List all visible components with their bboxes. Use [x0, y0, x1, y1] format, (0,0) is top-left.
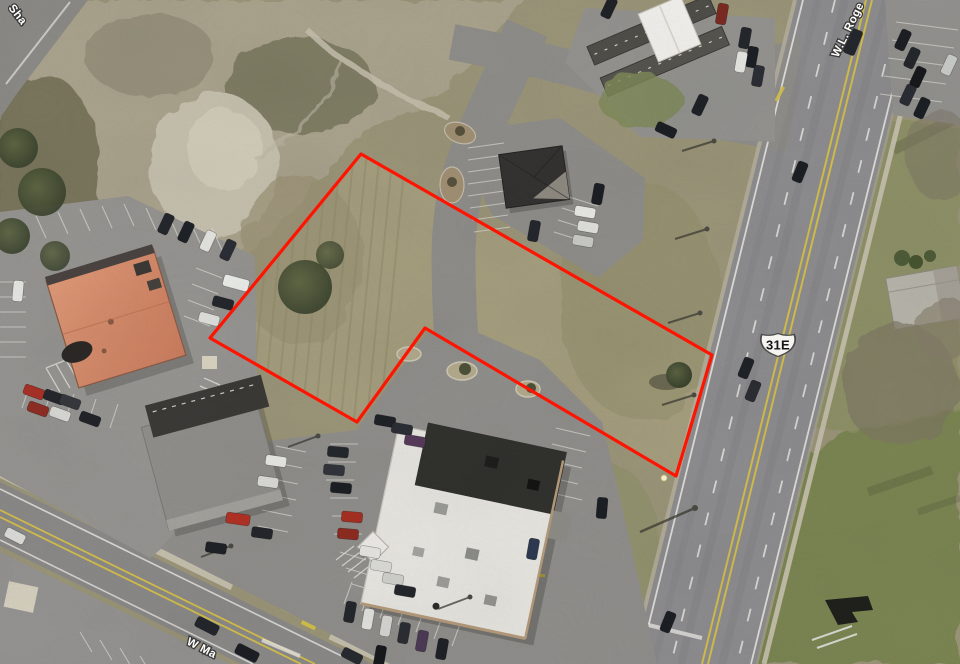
map-canvas[interactable]: 31E Sha W.L. Roge W Ma	[0, 0, 960, 664]
parcel-corner-marker	[661, 475, 667, 481]
route-shield-label: 31E	[766, 338, 790, 353]
aerial-map-view: 31E Sha W.L. Roge W Ma	[0, 0, 960, 664]
grain-overlay	[0, 0, 960, 664]
